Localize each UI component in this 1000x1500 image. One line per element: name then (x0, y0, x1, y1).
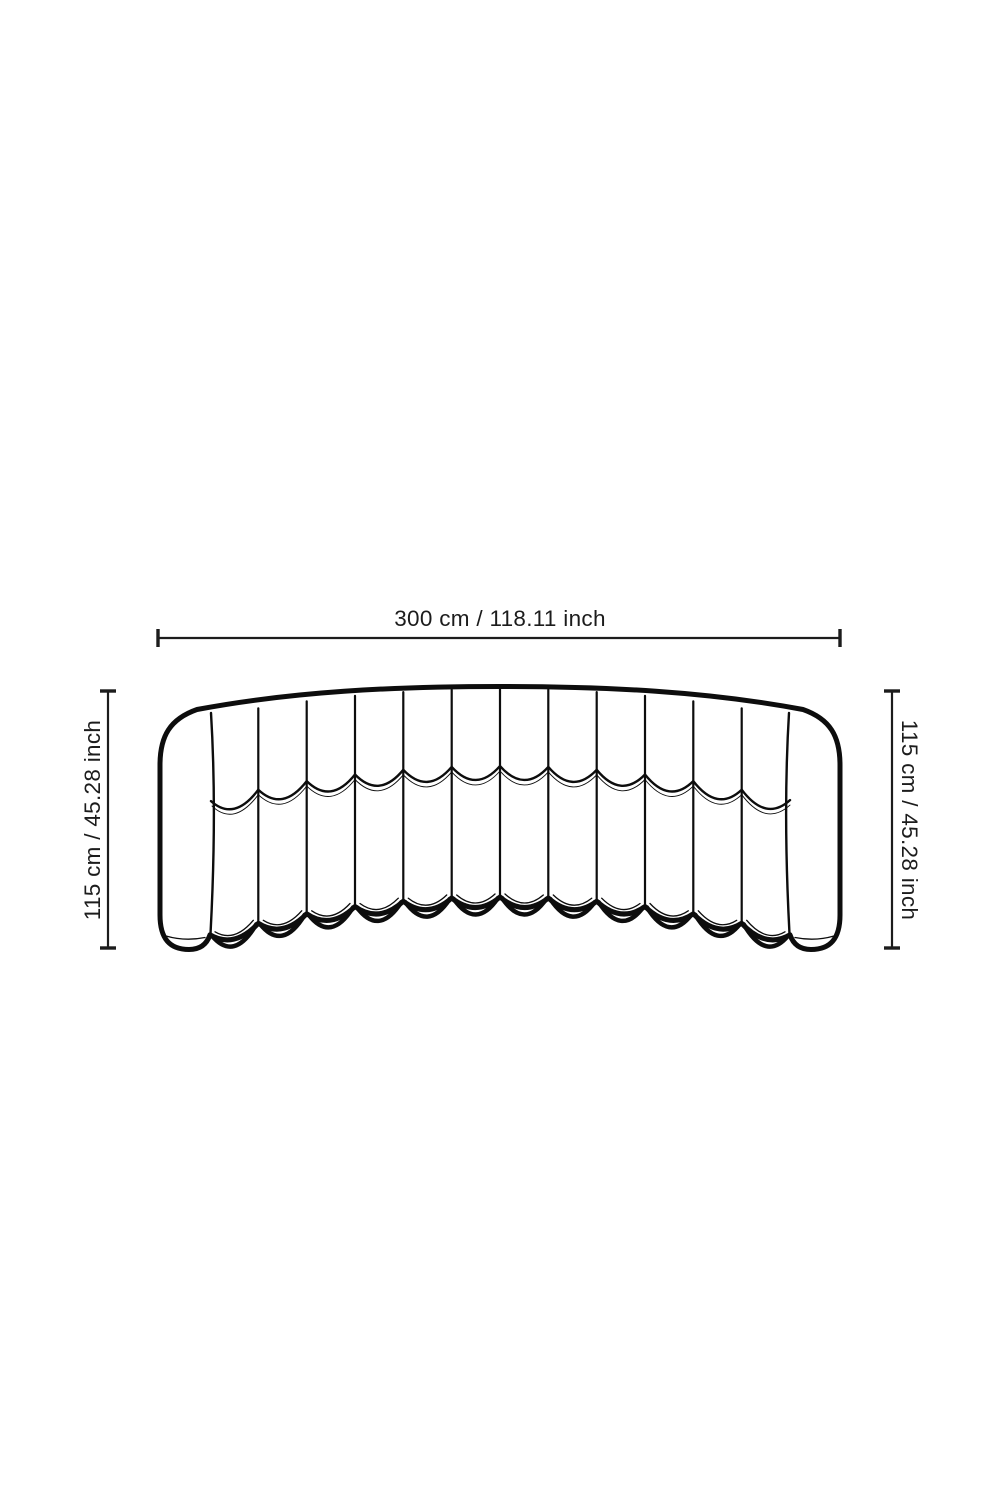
sofa-front-view (160, 687, 840, 950)
height-dimension-label-left: 115 cm / 45.28 inch (80, 720, 106, 920)
dimension-diagram-canvas: 300 cm / 118.11 inch 115 cm / 45.28 inch… (0, 0, 1000, 1500)
width-dimension-label: 300 cm / 118.11 inch (394, 606, 606, 632)
sofa-line-drawing (0, 0, 1000, 1500)
height-dimension-label-right: 115 cm / 45.28 inch (896, 720, 922, 920)
sofa-channel-seams (258, 689, 741, 922)
